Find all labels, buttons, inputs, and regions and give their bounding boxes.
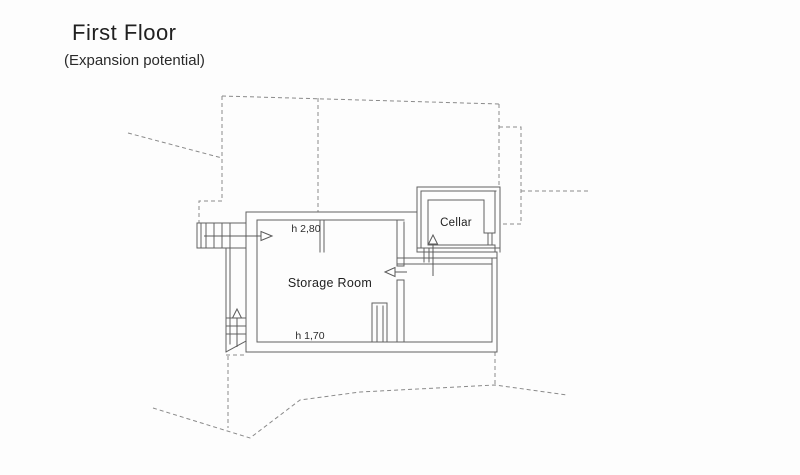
boundary-left [199,96,222,223]
stairs-down-arrow-head [233,309,242,318]
plan-labels: Storage Room Cellar h 2,80 h 1,70 [288,217,472,342]
height-annotation-upper: h 2,80 [291,223,320,235]
floor-plan-drawing: Storage Room Cellar h 2,80 h 1,70 [0,0,800,475]
entry-arrow-head [261,232,272,241]
door-swing-arrow [385,268,407,277]
boundary-top [222,96,499,104]
scanned-floor-plan-page: First Floor (Expansion potential) [0,0,800,475]
cellar-stairs-arrow-head [429,235,438,244]
boundary-right-step [499,127,521,224]
height-annotation-lower: h 1,70 [295,330,324,342]
room-label-cellar: Cellar [440,217,472,229]
stairs-down-arrow [233,309,242,347]
building-walls [246,187,500,352]
cellar-steps [424,248,429,262]
door-swing-arrow-head [385,268,395,277]
boundary-bottom-polyline [153,385,567,438]
cellar-stairs-arrow [429,235,438,276]
right-room-walls [397,252,497,352]
corridor-walls [226,248,230,352]
cellar-window [484,233,495,245]
storage-room-duct [372,303,387,342]
lower-stairs [226,248,246,352]
boundary-left-diagonal [128,133,222,158]
room-label-storage: Storage Room [288,276,372,290]
cellar-step-lines [424,248,429,262]
property-boundary [128,96,588,438]
lower-stairs-treads [226,318,246,352]
